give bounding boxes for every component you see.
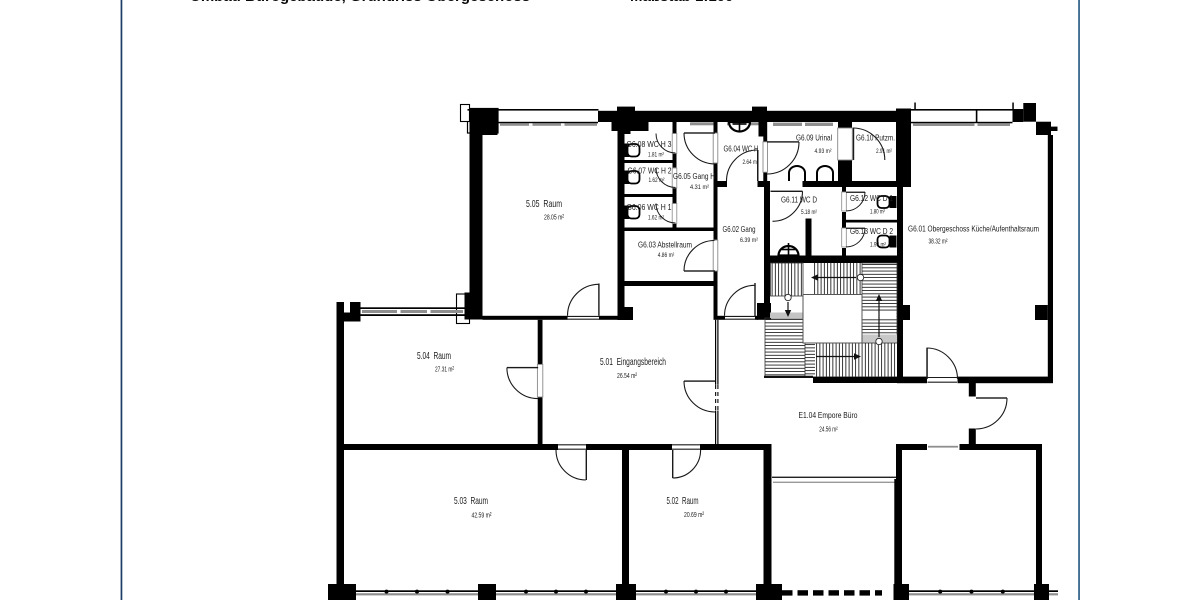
svg-text:2.91 m²: 2.91 m² [876, 148, 893, 155]
svg-text:38.32 m²: 38.32 m² [929, 237, 948, 246]
svg-text:Maßstab 1:100: Maßstab 1:100 [630, 0, 733, 5]
svg-text:Umbau Bürogebäude, Grundriss O: Umbau Bürogebäude, Grundriss Obergeschos… [190, 0, 530, 5]
svg-text:27.31 m²: 27.31 m² [435, 365, 454, 374]
svg-text:5.02 Raum: 5.02 Raum [667, 496, 699, 507]
svg-text:5.04 Raum: 5.04 Raum [417, 351, 451, 362]
svg-text:G6.13 WC D 2: G6.13 WC D 2 [850, 227, 893, 236]
svg-text:G6.03 Abstellraum: G6.03 Abstellraum [638, 240, 692, 250]
svg-text:G6.12 WC D 1: G6.12 WC D 1 [850, 194, 893, 203]
svg-text:26.54 m²: 26.54 m² [617, 371, 637, 380]
svg-text:42.59 m²: 42.59 m² [472, 511, 492, 520]
svg-text:G6.09 Urinal: G6.09 Urinal [796, 133, 832, 143]
svg-text:E1.04 Empore Büro: E1.04 Empore Büro [799, 410, 858, 420]
svg-text:5.01 Eingangsbereich: 5.01 Eingangsbereich [600, 357, 666, 368]
svg-text:4.93 m²: 4.93 m² [815, 148, 833, 155]
svg-text:G6.10 Putzm.: G6.10 Putzm. [856, 133, 895, 143]
svg-text:5.05 Raum: 5.05 Raum [526, 199, 562, 210]
svg-text:G6.11 WC D: G6.11 WC D [781, 195, 817, 205]
svg-text:G6.07 WC H 2: G6.07 WC H 2 [628, 167, 672, 176]
svg-text:20.69 m²: 20.69 m² [684, 510, 704, 519]
svg-text:28.05 m²: 28.05 m² [544, 213, 564, 222]
svg-text:G6.08 WC H 3: G6.08 WC H 3 [627, 140, 672, 149]
svg-text:G6.02 Gang: G6.02 Gang [723, 224, 756, 234]
svg-text:1.62 m²: 1.62 m² [648, 215, 664, 222]
svg-text:1.81 m²: 1.81 m² [648, 152, 664, 159]
svg-text:1.80 m²: 1.80 m² [870, 209, 885, 216]
svg-text:1.93 m²: 1.93 m² [870, 242, 886, 249]
svg-text:1.62 m²: 1.62 m² [649, 177, 665, 184]
svg-text:2.64 m²: 2.64 m² [743, 159, 760, 166]
svg-text:4.31 m²: 4.31 m² [690, 184, 710, 191]
svg-text:G6.05 Gang H: G6.05 Gang H [673, 171, 715, 181]
svg-text:5.03 Raum: 5.03 Raum [454, 496, 488, 507]
svg-text:G6.01 Obergeschoss Küche/Aufen: G6.01 Obergeschoss Küche/Aufenthaltsraum [908, 224, 1039, 234]
svg-text:24.56 m²: 24.56 m² [819, 425, 838, 434]
svg-text:G6.04 WC H: G6.04 WC H [724, 144, 759, 154]
svg-text:G6.06 WC H 1: G6.06 WC H 1 [627, 203, 672, 212]
svg-text:4.86 m²: 4.86 m² [658, 252, 675, 259]
svg-text:6.39 m²: 6.39 m² [740, 237, 759, 244]
svg-text:5.18 m²: 5.18 m² [801, 209, 818, 216]
